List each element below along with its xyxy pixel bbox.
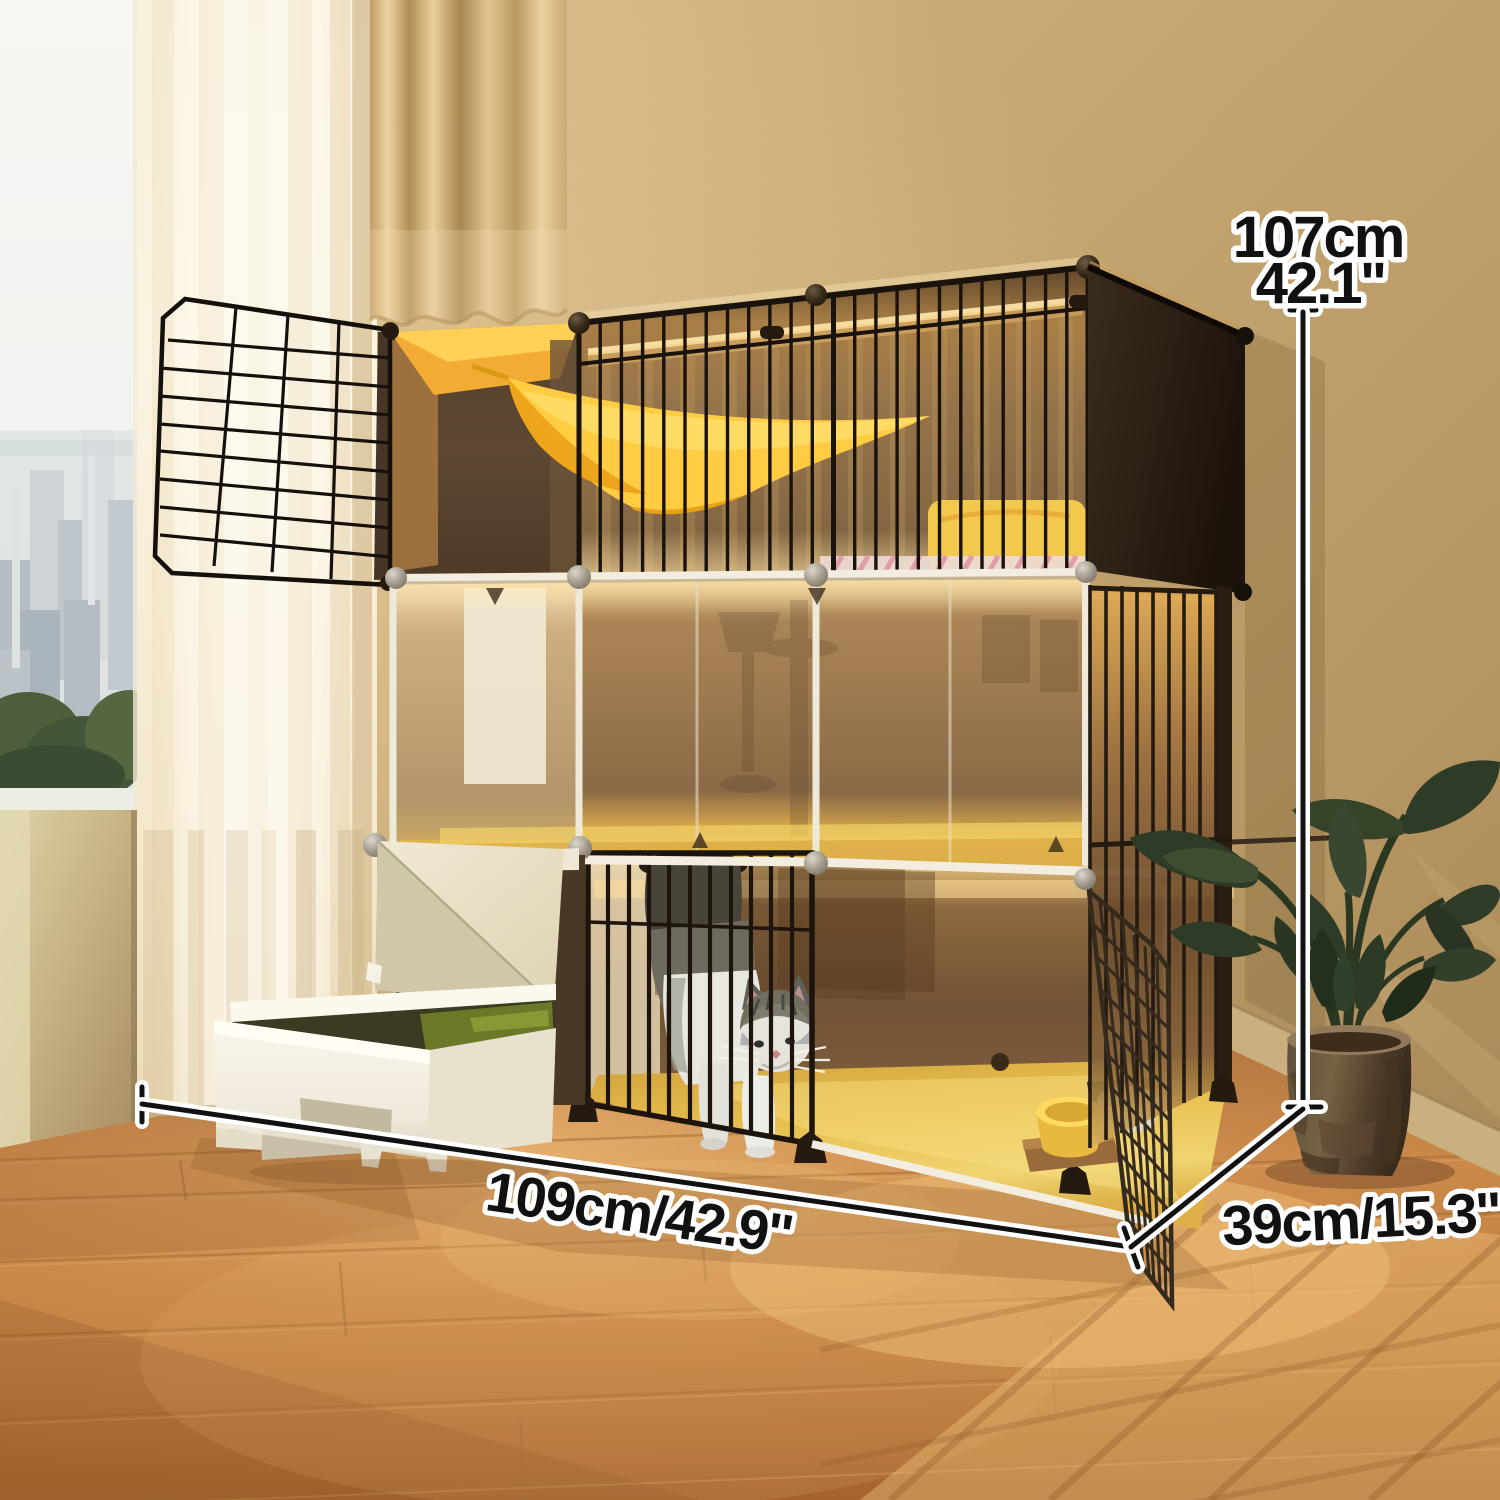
svg-text:42.1'': 42.1'' <box>1256 251 1384 316</box>
